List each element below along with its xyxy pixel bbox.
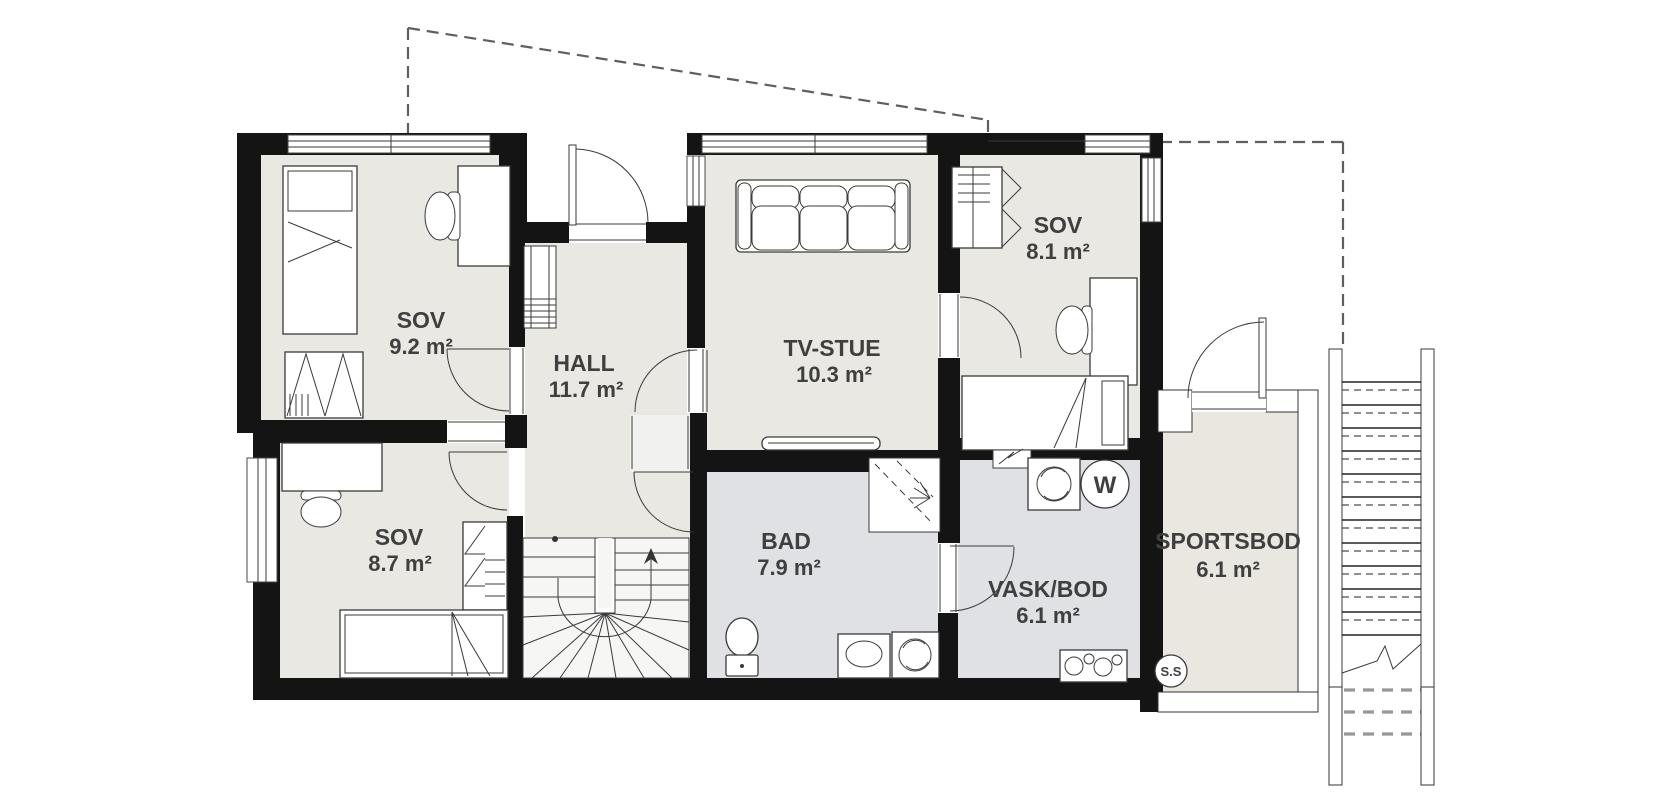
entry-door-leaf (569, 145, 576, 225)
pillow (1102, 381, 1124, 445)
window-sov-1-top (288, 135, 490, 153)
window-tv-stue-top (702, 135, 927, 153)
washing-machine-bad (892, 632, 939, 678)
window-sov-3-left (247, 458, 277, 582)
bed-sov-1 (283, 166, 357, 334)
stair-start-dot (552, 536, 558, 542)
wall-sov1-sov3 (261, 420, 447, 443)
label-vask-bod-name: VASK/BOD (988, 576, 1108, 602)
bathroom-sink (838, 634, 890, 678)
exterior-stairs (1329, 349, 1434, 785)
wall-entry-left (523, 222, 569, 243)
sofa-armrest-right (895, 183, 908, 249)
stair-post-right (1421, 687, 1434, 785)
electrical-panel (993, 449, 1031, 468)
floorplan-drawing: W S.S SOV 9.2 m² HALL 11.7 m² TV-STUE 10… (0, 0, 1670, 800)
wall-bottom (253, 678, 1158, 700)
wall-entry-right (646, 222, 690, 243)
door-sportsbod (1188, 318, 1266, 412)
wall-jamb-hall-west (505, 415, 527, 448)
hot-water-tank: W (1081, 460, 1129, 508)
desk-sov-1 (458, 166, 510, 266)
exterior-stair-treads (1342, 382, 1421, 635)
roof-dash-diagonal (408, 28, 988, 120)
wall-sov3-stair (507, 516, 523, 678)
label-sportsbod-area: 6.1 m² (1196, 557, 1260, 582)
ss-marker-label: S.S (1161, 664, 1182, 679)
label-sov-1-area: 9.2 m² (389, 334, 453, 359)
shower (869, 458, 940, 532)
label-hall-area: 11.7 m² (549, 377, 624, 402)
bad-doorway-floor (630, 415, 690, 472)
pillow (288, 171, 352, 211)
sofa (736, 180, 910, 252)
window-entry-sidelight (687, 156, 705, 206)
label-sov-2-area: 8.1 m² (1026, 239, 1090, 264)
sofa-armrest-left (738, 183, 751, 249)
hot-water-tank-label: W (1094, 472, 1117, 499)
wardrobe-sov-3 (463, 522, 507, 610)
label-bad-area: 7.9 m² (757, 555, 821, 580)
sportsbod-wall-top-left (1158, 390, 1192, 432)
desk-sov-2 (1090, 278, 1137, 385)
entry-door-swing (576, 149, 648, 223)
door-sportsbod-swing (1188, 322, 1264, 398)
door-sportsbod-leaf (1259, 318, 1266, 398)
wall-bad-vask-upper (938, 358, 960, 543)
label-sov-1-name: SOV (397, 307, 446, 333)
label-sportsbod-name: SPORTSBOD (1155, 528, 1301, 554)
chair-sov-3 (301, 491, 341, 527)
entry-door (569, 145, 648, 243)
label-bad-name: BAD (761, 528, 811, 554)
sportsbod-wall-right (1298, 390, 1318, 712)
label-vask-bod-area: 6.1 m² (1016, 603, 1080, 628)
bed-sov-2 (962, 376, 1128, 450)
washing-machine-vask (1028, 458, 1080, 510)
toilet (726, 618, 758, 676)
sportsbod-wall-bottom (1158, 692, 1318, 712)
interior-stairs (523, 536, 689, 678)
wall-right (1140, 155, 1163, 712)
floorplan-page: W S.S SOV 9.2 m² HALL 11.7 m² TV-STUE 10… (0, 0, 1670, 800)
laundry-sink (1060, 650, 1127, 682)
loft-ladder (524, 246, 556, 328)
label-sov-3-area: 8.7 m² (368, 551, 432, 576)
stair-post-left (1329, 687, 1342, 785)
label-tv-stue-area: 10.3 m² (796, 362, 872, 387)
stair-stringer-right (1421, 349, 1434, 687)
label-tv-stue-name: TV-STUE (783, 335, 880, 361)
label-hall-name: HALL (553, 350, 614, 376)
wall-bad-vask-jamb (938, 613, 958, 678)
window-sov-2-right (1142, 158, 1161, 222)
stair-stringer-left (1329, 349, 1342, 687)
wall-left-upper (237, 133, 261, 433)
chair-sov-2 (1056, 306, 1092, 354)
stair-break-line (1342, 644, 1421, 673)
chair-sov-1 (425, 192, 460, 240)
wall-hall-tvstue (687, 204, 705, 348)
wall-sov1-hall (509, 225, 525, 347)
bed-sov-3 (340, 610, 508, 678)
sportsbod-ss-marker: S.S (1155, 655, 1187, 687)
desk-sov-3 (282, 443, 382, 491)
tv-bench (762, 437, 880, 450)
label-sov-3-name: SOV (375, 524, 424, 550)
wardrobe-sov-1 (285, 352, 363, 418)
label-sov-2-name: SOV (1034, 212, 1083, 238)
